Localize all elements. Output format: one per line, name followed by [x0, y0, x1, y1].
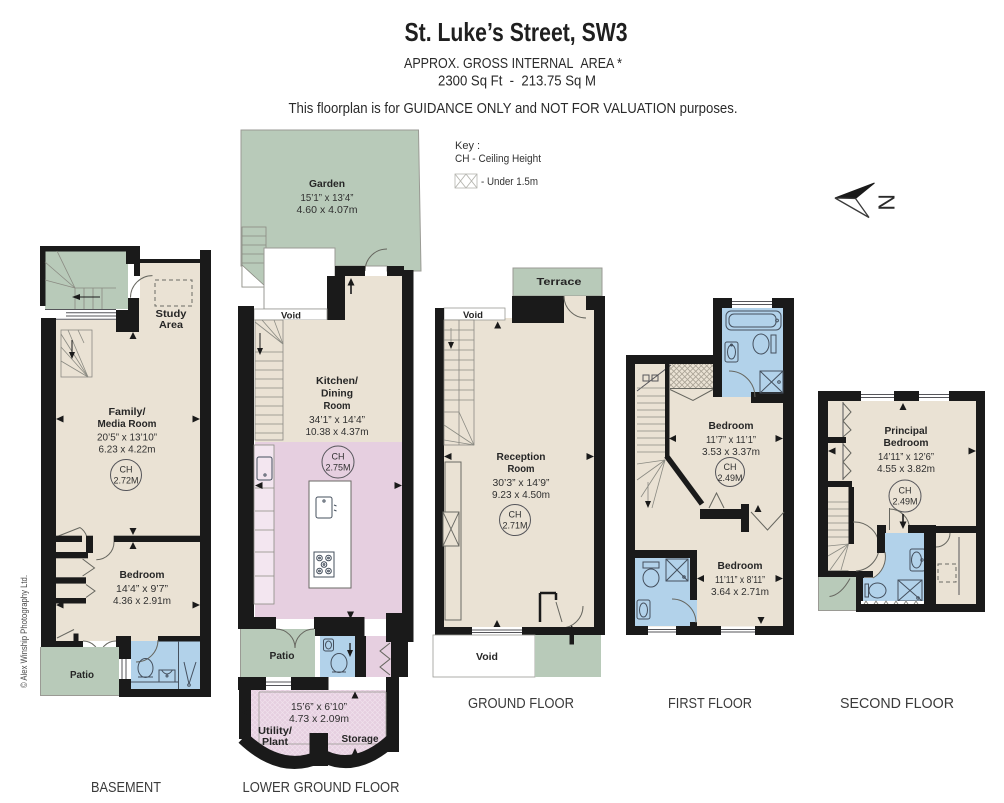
- svg-text:St. Luke’s Street, SW3: St. Luke’s Street, SW3: [405, 17, 628, 47]
- svg-text:Void: Void: [463, 310, 483, 321]
- svg-text:Principal: Principal: [885, 425, 928, 437]
- svg-text:SECOND FLOOR: SECOND FLOOR: [840, 695, 954, 712]
- svg-text:14’4” x 9’7”: 14’4” x 9’7”: [116, 583, 168, 595]
- svg-text:34’1” x 14’4”: 34’1” x 14’4”: [309, 414, 365, 426]
- svg-text:30’3” x 14’9”: 30’3” x 14’9”: [493, 477, 550, 489]
- svg-text:4.73 x 2.09m: 4.73 x 2.09m: [289, 713, 349, 725]
- svg-text:Room: Room: [508, 463, 535, 475]
- svg-text:CH: CH: [509, 510, 522, 520]
- svg-text:4.60 x 4.07m: 4.60 x 4.07m: [297, 204, 358, 216]
- svg-text:3.53 x 3.37m: 3.53 x 3.37m: [702, 446, 760, 458]
- svg-text:Storage: Storage: [342, 733, 379, 745]
- svg-text:GROUND FLOOR: GROUND FLOOR: [468, 695, 574, 712]
- svg-text:BASEMENT: BASEMENT: [91, 779, 161, 796]
- svg-text:- Under 1.5m: - Under 1.5m: [481, 176, 538, 188]
- svg-text:N: N: [874, 194, 900, 211]
- svg-text:Patio: Patio: [270, 650, 295, 662]
- svg-text:Bedroom: Bedroom: [718, 560, 763, 572]
- svg-text:2.49M: 2.49M: [892, 497, 917, 507]
- svg-text:10.38 x 4.37m: 10.38 x 4.37m: [306, 426, 369, 438]
- svg-text:2300 Sq Ft - 213.75 Sq M: 2300 Sq Ft - 213.75 Sq M: [438, 74, 596, 90]
- svg-text:6.23 x 4.22m: 6.23 x 4.22m: [99, 444, 156, 456]
- svg-text:Bedroom: Bedroom: [709, 420, 754, 432]
- svg-text:20’5” x 13’10”: 20’5” x 13’10”: [97, 432, 157, 444]
- svg-text:Plant: Plant: [262, 736, 289, 748]
- svg-text:14’11” x 12’6”: 14’11” x 12’6”: [878, 451, 934, 463]
- svg-text:Bedroom: Bedroom: [884, 437, 929, 449]
- svg-text:CH: CH: [332, 452, 345, 462]
- svg-text:Void: Void: [281, 311, 301, 322]
- svg-text:15’1” x 13’4”: 15’1” x 13’4”: [301, 192, 354, 204]
- svg-text:Area: Area: [159, 319, 183, 331]
- svg-text:4.36 x 2.91m: 4.36 x 2.91m: [113, 595, 171, 607]
- svg-text:Media Room: Media Room: [98, 418, 157, 430]
- svg-text:4.55 x 3.82m: 4.55 x 3.82m: [877, 463, 935, 475]
- svg-text:Family/: Family/: [109, 406, 146, 418]
- svg-text:11’7” x 11’1”: 11’7” x 11’1”: [706, 434, 756, 446]
- svg-text:2.71M: 2.71M: [502, 521, 527, 531]
- svg-text:Garden: Garden: [309, 178, 345, 190]
- svg-text:15’6” x 6’10”: 15’6” x 6’10”: [291, 701, 347, 713]
- svg-text:Void: Void: [476, 651, 498, 663]
- svg-text:CH: CH: [899, 486, 912, 496]
- svg-text:Key :: Key :: [455, 140, 480, 152]
- svg-text:Terrace: Terrace: [537, 276, 582, 288]
- svg-text:2.75M: 2.75M: [325, 463, 350, 473]
- svg-text:This floorplan is for GUIDANCE: This floorplan is for GUIDANCE ONLY and …: [289, 100, 738, 117]
- svg-text:CH: CH: [120, 465, 133, 475]
- svg-text:Kitchen/: Kitchen/: [316, 375, 358, 387]
- svg-text:3.64 x 2.71m: 3.64 x 2.71m: [711, 586, 769, 598]
- svg-text:2.72M: 2.72M: [113, 476, 138, 486]
- svg-text:11’11” x 8’11”: 11’11” x 8’11”: [715, 574, 765, 586]
- svg-text:Bedroom: Bedroom: [120, 569, 165, 581]
- svg-text:FIRST FLOOR: FIRST FLOOR: [668, 695, 752, 712]
- svg-text:CH - Ceiling Height: CH - Ceiling Height: [455, 153, 541, 165]
- svg-text:Reception: Reception: [497, 451, 546, 463]
- svg-text:Room: Room: [324, 400, 351, 412]
- svg-text:LOWER GROUND FLOOR: LOWER GROUND FLOOR: [243, 779, 400, 796]
- svg-text:Patio: Patio: [70, 669, 94, 681]
- svg-text:Dining: Dining: [321, 388, 353, 400]
- svg-text:9.23 x 4.50m: 9.23 x 4.50m: [492, 489, 550, 501]
- svg-text:2.49M: 2.49M: [717, 473, 742, 483]
- svg-text:APPROX. GROSS INTERNAL AREA *: APPROX. GROSS INTERNAL AREA *: [404, 56, 622, 72]
- svg-text:CH: CH: [724, 462, 737, 472]
- svg-text:© Alex Winship Photography Ltd: © Alex Winship Photography Ltd.: [19, 575, 29, 688]
